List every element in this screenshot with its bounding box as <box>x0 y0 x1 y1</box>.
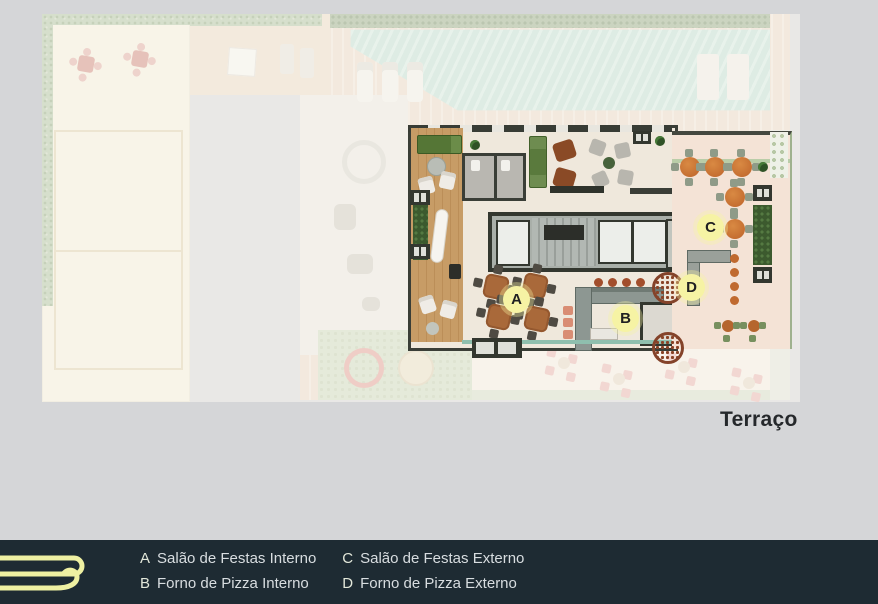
bar-cabinet <box>590 328 618 340</box>
marker-letter: D <box>686 279 697 296</box>
bistro-table <box>748 320 760 332</box>
legend-letter: C <box>342 548 353 570</box>
legend-bar: ASalão de Festas Interno BForno de Pizza… <box>0 540 878 604</box>
bar-stool <box>622 278 631 287</box>
active-floor <box>42 14 800 402</box>
bar-stool <box>608 278 617 287</box>
brand-logo-icon <box>0 544 110 602</box>
plant <box>470 140 480 150</box>
marker-forno-pizza-interno[interactable]: B <box>612 305 639 332</box>
bistro-table <box>722 320 734 332</box>
terrace-table <box>725 187 745 207</box>
interior-wall <box>630 188 675 194</box>
page: { "plan": { "title": "Terraço" }, "legen… <box>0 0 878 604</box>
deck-daybed <box>417 135 462 154</box>
legend-item: DForno de Pizza Externo <box>342 573 524 595</box>
legend: ASalão de Festas Interno BForno de Pizza… <box>140 548 524 595</box>
legend-item: CSalão de Festas Externo <box>342 548 524 570</box>
legend-letter: D <box>342 573 353 595</box>
sideboard <box>550 186 604 193</box>
legend-label: Salão de Festas Interno <box>157 550 316 567</box>
terrace-window <box>633 131 651 144</box>
bar-stool <box>636 278 645 287</box>
window-frame <box>410 190 430 205</box>
counter-stool <box>730 296 739 305</box>
legend-letter: A <box>140 548 150 570</box>
marker-forno-pizza-externo[interactable]: D <box>678 274 705 301</box>
marker-salao-festas-externo[interactable]: C <box>697 214 724 241</box>
plant <box>758 162 768 172</box>
legend-letter: B <box>140 573 150 595</box>
lounge-chair <box>617 169 634 186</box>
legend-label: Salão de Festas Externo <box>360 550 524 567</box>
legend-item: BForno de Pizza Interno <box>140 573 316 595</box>
counter-stool <box>730 282 739 291</box>
marker-salao-festas-interno[interactable]: A <box>503 286 530 313</box>
restrooms <box>462 153 526 201</box>
legend-column-left: ASalão de Festas Interno BForno de Pizza… <box>140 548 316 595</box>
terrace-table <box>725 219 745 239</box>
legend-column-right: CSalão de Festas Externo DForno de Pizza… <box>342 548 524 595</box>
lower-window-wall <box>472 338 522 358</box>
elevator-core <box>488 212 696 272</box>
legend-label: Forno de Pizza Interno <box>157 575 309 592</box>
terrace-table <box>705 157 725 177</box>
counter-stool <box>730 268 739 277</box>
terrace-window <box>753 185 772 201</box>
lounge-coffee-table <box>603 157 615 169</box>
marker-letter: A <box>511 291 522 308</box>
legend-item: ASalão de Festas Interno <box>140 548 316 570</box>
legend-label: Forno de Pizza Externo <box>360 575 517 592</box>
bar-stool <box>594 278 603 287</box>
marker-letter: C <box>705 219 716 236</box>
window-frame <box>410 244 430 259</box>
grill <box>449 264 461 279</box>
plant <box>655 136 665 146</box>
counter-stool <box>730 254 739 263</box>
terrace-planter-boxes <box>770 132 788 178</box>
marker-letter: B <box>620 310 631 327</box>
terrace-window <box>753 267 772 283</box>
deck-side-table <box>426 322 439 335</box>
floor-plan: A B C D <box>42 14 800 402</box>
lounge-sofa <box>529 136 547 188</box>
terrace-table <box>732 157 752 177</box>
terrace-planter <box>753 205 772 265</box>
pizza-oven <box>652 332 684 364</box>
outdoor-pizza-counter-top <box>687 250 731 263</box>
lounge-chair <box>614 142 632 160</box>
floor-title: Terraço <box>720 408 798 432</box>
party-table <box>523 305 551 333</box>
